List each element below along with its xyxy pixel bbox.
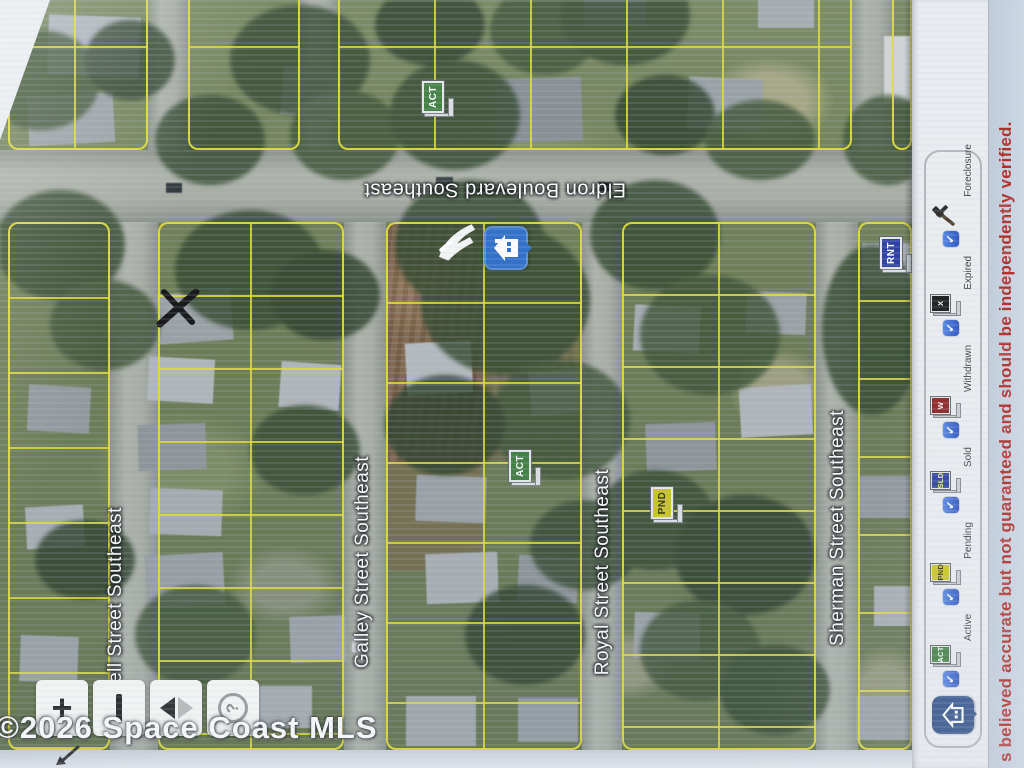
legend-label: Pending bbox=[963, 522, 974, 559]
legend-item-pending: ✔ PND Pending bbox=[926, 522, 980, 605]
act-flag-icon: ACT bbox=[931, 645, 961, 667]
legend-label: Sold bbox=[963, 447, 974, 467]
marker-act-mid[interactable]: ACT bbox=[509, 442, 539, 486]
checkbox-sold[interactable]: ✔ bbox=[943, 497, 959, 513]
parcel-block bbox=[386, 222, 582, 750]
gavel-icon bbox=[930, 201, 956, 227]
parcel-block bbox=[8, 222, 110, 750]
pnd-flag-icon: PND bbox=[931, 563, 961, 585]
legend-label: Active bbox=[963, 614, 974, 641]
checkbox-pending[interactable]: ✔ bbox=[943, 589, 959, 605]
sld-flag-icon: SLD bbox=[931, 471, 961, 493]
map-region[interactable]: Eldron Boulevard Southeast kell Street S… bbox=[0, 0, 912, 750]
listings-home-button[interactable] bbox=[932, 696, 974, 734]
legend-item-expired: ✔ X Expired bbox=[926, 256, 980, 336]
disclaimer-text: s believed accurate but not guaranteed a… bbox=[996, 121, 1016, 762]
street-label-eldron: Eldron Boulevard Southeast bbox=[364, 178, 626, 201]
screenshot-root: Eldron Boulevard Southeast kell Street S… bbox=[0, 0, 1024, 768]
legend-item-active: ✔ ACT Active bbox=[926, 614, 980, 687]
checkbox-expired[interactable]: ✔ bbox=[943, 320, 959, 336]
legend-item-foreclosure: ✔ Foreclosure bbox=[926, 144, 980, 247]
legend-item-sold: ✔ SLD Sold bbox=[926, 447, 980, 513]
home-icon bbox=[940, 702, 966, 728]
selected-listing-pin[interactable] bbox=[484, 224, 530, 270]
rnt-flag: RNT bbox=[880, 237, 902, 269]
act-flag: ACT bbox=[509, 450, 531, 482]
parcel-block bbox=[338, 0, 852, 150]
street-label-royal: Royal Street Southeast bbox=[592, 469, 614, 675]
checkbox-foreclosure[interactable]: ✔ bbox=[943, 231, 959, 247]
street-label-galley: Galley Street Southeast bbox=[352, 456, 374, 668]
checkbox-active[interactable]: ✔ bbox=[943, 671, 959, 687]
flag-pole bbox=[653, 519, 680, 523]
legend-label: Withdrawn bbox=[963, 345, 974, 392]
street-label-kell: kell Street Southeast bbox=[105, 507, 127, 693]
marker-pnd[interactable]: PND bbox=[651, 479, 681, 523]
act-flag: ACT bbox=[422, 81, 444, 113]
legend-label: Expired bbox=[963, 256, 974, 290]
withdrawn-flag-icon: W bbox=[931, 396, 961, 418]
map-edge-shadow bbox=[904, 0, 912, 750]
legend-item-withdrawn: ✔ W Withdrawn bbox=[926, 345, 980, 438]
x-mark-icon bbox=[152, 284, 204, 330]
parcel-block bbox=[188, 0, 300, 150]
legend-row: ✔ ACT Active ✔ PND Pending ✔ SLD Sold bbox=[926, 148, 980, 746]
flag-pole bbox=[424, 113, 451, 117]
marker-act-top[interactable]: ACT bbox=[422, 73, 452, 117]
mls-watermark: ©2026 Space Coast MLS bbox=[0, 710, 378, 746]
street-label-sherman: Sherman Street Southeast bbox=[827, 410, 849, 646]
pnd-flag: PND bbox=[651, 487, 673, 519]
expired-flag-icon: X bbox=[931, 294, 961, 316]
status-legend-panel: ✔ ACT Active ✔ PND Pending ✔ SLD Sold bbox=[924, 150, 982, 748]
house-pin-icon bbox=[484, 226, 528, 270]
flag-pole bbox=[511, 482, 538, 486]
cursor-arrow-icon bbox=[52, 744, 82, 768]
bottom-strip bbox=[0, 750, 1024, 768]
disclaimer-strip: s believed accurate but not guaranteed a… bbox=[988, 0, 1024, 768]
checkbox-withdrawn[interactable]: ✔ bbox=[943, 422, 959, 438]
legend-label: Foreclosure bbox=[963, 144, 974, 197]
